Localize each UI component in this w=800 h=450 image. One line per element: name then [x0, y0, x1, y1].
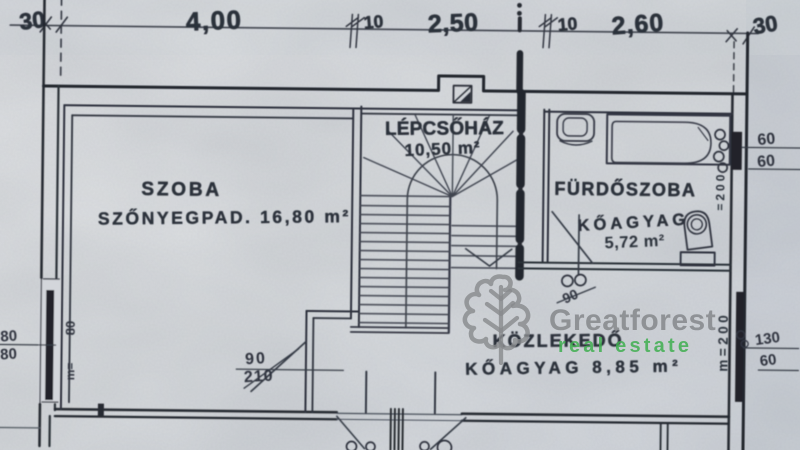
svg-text:m=: m= [63, 363, 77, 381]
svg-text:5,72 m²: 5,72 m² [604, 232, 665, 252]
svg-text:2,50: 2,50 [427, 8, 479, 38]
svg-text:80: 80 [0, 328, 18, 346]
svg-text:10: 10 [557, 13, 578, 34]
svg-text:60: 60 [756, 152, 775, 171]
svg-text:60: 60 [759, 351, 778, 370]
svg-text:10,50 m²: 10,50 m² [404, 138, 481, 160]
svg-text:80: 80 [63, 321, 78, 336]
svg-text:=200: =200 [713, 172, 727, 211]
svg-text:m=200: m=200 [715, 312, 731, 372]
svg-text:KŐAGYAG 8,85 m²: KŐAGYAG 8,85 m² [465, 357, 682, 379]
svg-text:SZŐNYEGPAD. 16,80 m²: SZŐNYEGPAD. 16,80 m² [98, 205, 351, 228]
svg-text:Greatforest: Greatforest [549, 304, 716, 337]
svg-text:10: 10 [363, 11, 384, 32]
svg-text:30: 30 [18, 6, 46, 35]
svg-text:80: 80 [0, 346, 17, 364]
svg-text:30: 30 [751, 10, 779, 39]
svg-text:SZOBA: SZOBA [141, 179, 222, 201]
svg-text:real estate: real estate [558, 335, 692, 357]
svg-text:2,60: 2,60 [611, 9, 666, 41]
svg-text:FÜRDŐSZOBA: FÜRDŐSZOBA [554, 178, 696, 201]
svg-text:4,00: 4,00 [185, 4, 243, 36]
svg-text:LÉPCSŐHÁZ: LÉPCSŐHÁZ [385, 117, 504, 140]
svg-text:90: 90 [245, 350, 268, 368]
svg-text:130: 130 [754, 329, 781, 349]
svg-text:60: 60 [757, 130, 776, 149]
